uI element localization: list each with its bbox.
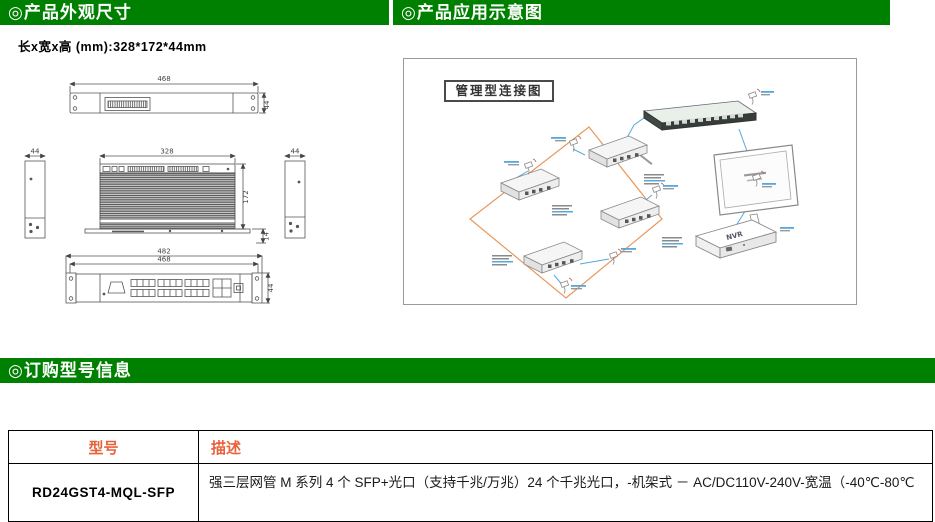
- rack-switch: [644, 101, 756, 130]
- application-diagram-box: 管理型连接图: [403, 58, 857, 305]
- dim-label-44-right: 44: [291, 148, 300, 156]
- side-view-left-drawing: 44: [25, 148, 45, 239]
- camera-icon: [609, 248, 636, 265]
- dim-label-468-rear: 468: [157, 75, 170, 83]
- rear-view-drawing: 468 44: [70, 75, 271, 113]
- edge-switch: [501, 169, 559, 200]
- dim-label-14: 14: [263, 232, 271, 241]
- model-cell: RD24GST4-MQL-SFP: [9, 464, 199, 522]
- monitor: [714, 145, 798, 234]
- ordering-table: 型号 描述 RD24GST4-MQL-SFP 强三层网管 M 系列 4 个 SF…: [8, 430, 933, 522]
- product-size-note: 长x宽x高 (mm):328*172*44mm: [18, 36, 207, 55]
- switch-label-placeholder: [492, 255, 513, 266]
- edge-switch: [524, 242, 582, 273]
- edge-switch: [601, 197, 659, 228]
- dimension-drawings: 468 44 44 328: [0, 60, 340, 360]
- top-view-drawing: 328 172 14: [85, 148, 271, 244]
- dim-label-468-front: 468: [157, 256, 170, 264]
- side-view-right-drawing: 44: [285, 148, 305, 239]
- column-header-description: 描述: [199, 431, 933, 464]
- dim-label-44-rear: 44: [263, 100, 271, 109]
- section-header-ordering: ◎订购型号信息: [0, 358, 935, 383]
- dim-label-172: 172: [242, 190, 250, 203]
- camera-icon: [560, 278, 586, 294]
- dim-label-482: 482: [157, 248, 170, 256]
- dim-label-44-left: 44: [31, 148, 40, 156]
- column-header-model: 型号: [9, 431, 199, 464]
- description-cell: 强三层网管 M 系列 4 个 SFP+光口（支持千兆/万兆）24 个千兆光口，-…: [199, 464, 933, 522]
- camera-icon: [748, 89, 774, 105]
- camera-icon: [551, 136, 581, 152]
- front-view-drawing: 482 468 44: [66, 248, 275, 304]
- dim-label-328: 328: [160, 148, 173, 156]
- diagram-title: 管理型连接图: [444, 80, 554, 102]
- section-header-application: ◎产品应用示意图: [393, 0, 890, 25]
- edge-switch: [589, 136, 647, 167]
- switch-label-placeholder: [552, 205, 573, 216]
- switch-label-placeholder: [662, 237, 683, 248]
- table-row: RD24GST4-MQL-SFP 强三层网管 M 系列 4 个 SFP+光口（支…: [9, 464, 933, 522]
- camera-icon: [652, 183, 678, 199]
- nvr: NVR: [696, 220, 794, 258]
- front-port-groups: [131, 280, 209, 297]
- section-header-appearance: ◎产品外观尺寸: [0, 0, 389, 25]
- dim-label-44-front: 44: [267, 283, 275, 292]
- table-header-row: 型号 描述: [9, 431, 933, 464]
